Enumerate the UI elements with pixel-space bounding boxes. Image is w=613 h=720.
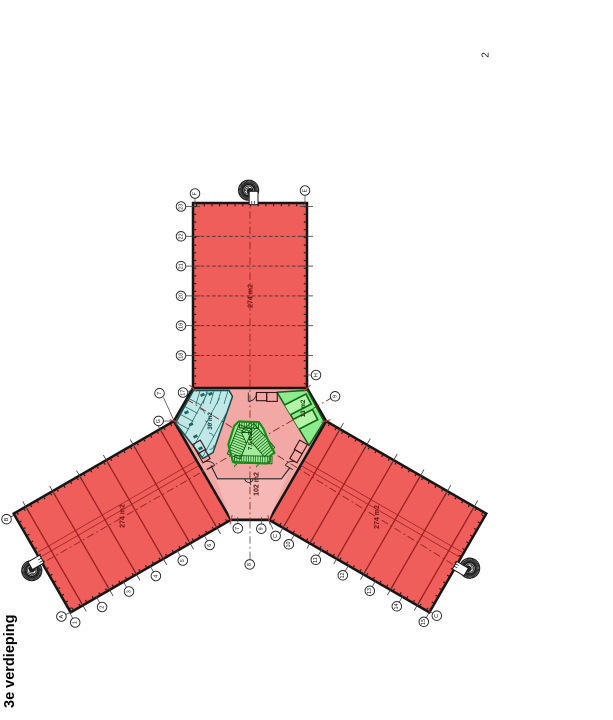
svg-text:3: 3 <box>126 590 132 593</box>
svg-text:30 m2: 30 m2 <box>207 412 214 430</box>
svg-text:G: G <box>156 419 162 423</box>
svg-text:274 m2: 274 m2 <box>248 284 255 308</box>
svg-text:1: 1 <box>73 621 79 624</box>
svg-text:2: 2 <box>481 52 492 58</box>
svg-text:5: 5 <box>180 559 186 562</box>
svg-text:15: 15 <box>421 619 427 625</box>
svg-text:274 m2: 274 m2 <box>119 504 126 528</box>
svg-text:102 m2: 102 m2 <box>253 472 260 496</box>
svg-text:C: C <box>273 534 279 538</box>
svg-text:H: H <box>313 373 319 377</box>
svg-text:2: 2 <box>100 606 106 609</box>
svg-text:13 m2: 13 m2 <box>300 399 307 417</box>
svg-text:17: 17 <box>180 390 186 396</box>
svg-text:7,6 m2: 7,6 m2 <box>248 432 254 450</box>
svg-text:19: 19 <box>178 323 184 329</box>
svg-text:22: 22 <box>178 234 184 240</box>
svg-text:7: 7 <box>157 392 163 395</box>
svg-text:13: 13 <box>367 588 373 594</box>
svg-text:18: 18 <box>178 353 184 359</box>
svg-text:B: B <box>4 517 10 521</box>
svg-text:274 m2: 274 m2 <box>374 505 381 529</box>
svg-text:E: E <box>302 189 308 193</box>
svg-text:4: 4 <box>153 575 159 578</box>
svg-text:10: 10 <box>286 542 292 548</box>
svg-text:6: 6 <box>207 544 213 547</box>
svg-text:11: 11 <box>313 557 319 563</box>
svg-text:12: 12 <box>340 573 346 579</box>
svg-text:23: 23 <box>178 204 184 210</box>
svg-text:21: 21 <box>178 263 184 269</box>
svg-text:14: 14 <box>394 604 400 610</box>
svg-text:9: 9 <box>333 395 339 398</box>
svg-text:7: 7 <box>235 527 241 530</box>
svg-text:8: 8 <box>247 563 253 566</box>
svg-text:A: A <box>59 615 65 619</box>
svg-text:20: 20 <box>178 293 184 299</box>
svg-text:3e verdieping: 3e verdieping <box>2 615 18 708</box>
svg-text:C: C <box>434 614 440 618</box>
svg-text:9: 9 <box>259 527 265 530</box>
